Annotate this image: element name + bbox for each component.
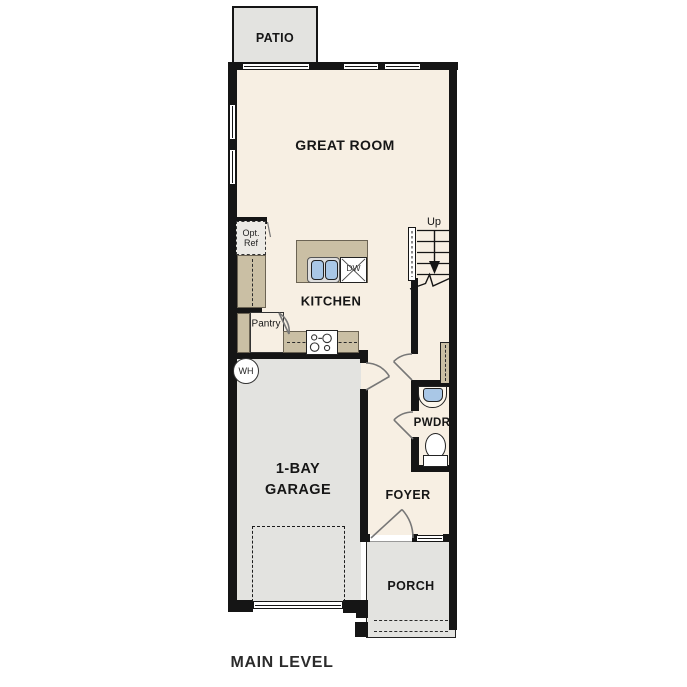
water-heater-label: WH [239, 366, 254, 376]
kitchen-label: KITCHEN [301, 294, 362, 309]
counter-left [237, 255, 266, 308]
foyer-label: FOYER [385, 488, 430, 502]
floor-plan-main-level: PATIO DW [0, 0, 687, 687]
wall-segment [443, 534, 453, 542]
window [229, 149, 236, 185]
optional-refrigerator: Opt. Ref [236, 221, 266, 255]
wall-segment [449, 62, 457, 630]
coat-closet [440, 342, 449, 383]
stairs-rail [408, 227, 416, 281]
great-room-label: GREAT ROOM [295, 137, 394, 153]
sink-basin [325, 260, 338, 280]
garage-label: 1-BAY GARAGE [265, 459, 331, 501]
porch-step-dash [374, 620, 448, 621]
wall-segment [356, 600, 368, 618]
wall-segment [228, 600, 253, 612]
powder-sink-basin [423, 388, 443, 402]
water-heater: WH [233, 358, 259, 384]
porch-step-dash [374, 631, 448, 632]
pantry-label: Pantry [252, 319, 281, 330]
porch-post [355, 622, 368, 637]
powder-label: PWDR [414, 417, 451, 429]
stove-burners-icon [307, 331, 337, 354]
window [229, 104, 236, 140]
window [343, 63, 379, 70]
wall-segment [360, 534, 370, 542]
toilet-tank [423, 455, 448, 467]
stairs-up-label: Up [427, 216, 441, 228]
dishwasher-label: DW [346, 263, 360, 273]
opt-ref-label-line1: Opt. [242, 228, 259, 238]
pantry-shelf [237, 313, 250, 353]
foyer-window [416, 535, 444, 542]
plan-title: MAIN LEVEL [231, 654, 334, 672]
porch-label: PORCH [387, 579, 434, 593]
garage-label-line2: GARAGE [265, 480, 331, 501]
garage-parking-pad [252, 526, 345, 602]
patio-label: PATIO [256, 31, 294, 45]
garage-door [253, 601, 343, 609]
wall-segment [228, 62, 237, 612]
closet-rod-dash [445, 345, 446, 381]
cabinet-dash [252, 259, 253, 306]
stove [306, 330, 338, 355]
window [242, 63, 310, 70]
wall-segment [360, 350, 368, 363]
garage-label-line1: 1-BAY [265, 459, 331, 480]
window [384, 63, 421, 70]
opt-ref-label-line2: Ref [244, 238, 258, 248]
wall-segment [360, 389, 368, 540]
front-door-threshold [370, 535, 412, 542]
wall-segment [411, 278, 418, 354]
sink-basin [311, 260, 324, 280]
